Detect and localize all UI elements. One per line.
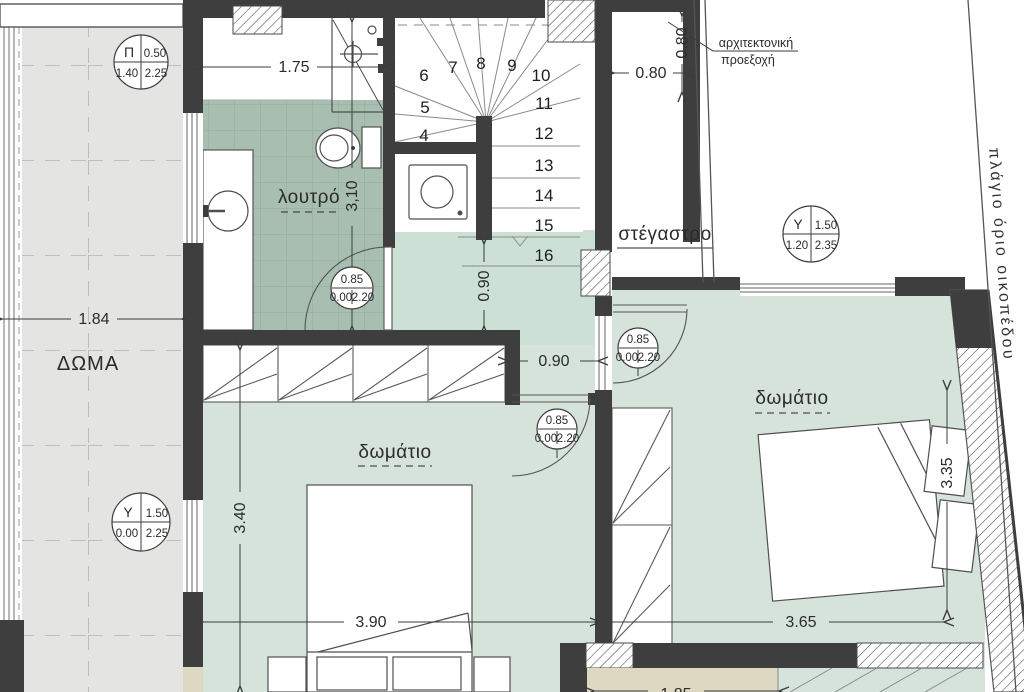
dim-bath-width: 1.75 xyxy=(278,59,309,76)
tag-value: 2.25 xyxy=(145,68,167,80)
pillow xyxy=(393,657,461,690)
stair-number: 8 xyxy=(476,54,485,73)
tag-window-y-terrace: Y 1.50 0.00 2.25 xyxy=(112,493,170,551)
tag-window-y-canopy: Y 1.50 1.20 2.35 xyxy=(783,206,839,262)
toilet xyxy=(316,127,381,168)
window-bedroom-right-north xyxy=(740,281,895,296)
window-bathroom-west xyxy=(183,113,203,243)
tag-letter: Y xyxy=(123,504,133,520)
tag-value: 2.20 xyxy=(557,433,579,445)
floor-plan-sheet: 4 5 6 7 8 9 10 11 12 13 14 15 16 xyxy=(0,0,1024,692)
dim-hall-h: 0.90 xyxy=(538,353,569,370)
terrace-floor xyxy=(0,4,183,692)
stair-number: 5 xyxy=(420,98,429,117)
window-hall-east xyxy=(595,316,612,390)
wardrobe-left xyxy=(203,345,505,402)
stair-number: 15 xyxy=(535,216,554,235)
tag-value: 0.50 xyxy=(144,48,166,60)
tag-value: 1.20 xyxy=(786,240,808,252)
sink-counter xyxy=(201,150,253,330)
tag-value: 0.00 xyxy=(535,433,557,445)
annotation-projection-line1: αρχιτεκτονική xyxy=(719,36,793,50)
dim-bedroom-left-width: 3.90 xyxy=(355,614,386,631)
dim-terrace-width: 1.84 xyxy=(78,311,109,328)
label-terrace: ΔΩΜΑ xyxy=(57,353,119,375)
pillow xyxy=(932,500,980,572)
stair-number: 9 xyxy=(507,56,516,75)
dim-bedroom-right-depth: 3.35 xyxy=(939,457,956,488)
stair-number: 11 xyxy=(535,94,553,113)
nightstand xyxy=(474,657,510,692)
wardrobe-right xyxy=(612,408,672,645)
stair-number: 16 xyxy=(535,246,554,265)
tag-value: 0.85 xyxy=(627,334,649,346)
tag-value: 0.00 xyxy=(616,352,638,364)
dim-bedroom-right-width: 3.65 xyxy=(785,614,816,631)
dim-bedroom-left-depth: 3.40 xyxy=(232,502,249,533)
tag-value: 1.50 xyxy=(815,220,837,232)
stair-number: 7 xyxy=(448,58,457,77)
nightstand xyxy=(268,657,306,692)
tag-value: 1.40 xyxy=(116,68,138,80)
label-bathroom: λουτρό xyxy=(278,187,340,208)
dim-hall-v: 0.90 xyxy=(476,270,493,301)
stair-number: 12 xyxy=(535,124,554,143)
stair-number: 14 xyxy=(535,186,554,205)
pillow xyxy=(317,657,387,690)
dim-niche-width: 0.80 xyxy=(635,65,666,82)
stair-number: 10 xyxy=(532,66,551,85)
tag-value: 2.20 xyxy=(352,292,374,304)
tag-letter: Π xyxy=(124,44,134,60)
tag-value: 2.20 xyxy=(638,352,660,364)
tag-value: 0.00 xyxy=(330,292,352,304)
tag-value: 2.35 xyxy=(815,240,837,252)
tag-letter: Y xyxy=(793,216,803,232)
dim-bottom-partial: 1.85 xyxy=(660,686,691,692)
tag-value: 2.25 xyxy=(146,528,168,540)
tag-value: 0.00 xyxy=(116,528,138,540)
dim-bath-length: 3,10 xyxy=(344,180,361,211)
stair-number: 13 xyxy=(535,156,554,175)
floor-plan-drawing: 4 5 6 7 8 9 10 11 12 13 14 15 16 xyxy=(0,0,1024,692)
window-bedroom-left-west xyxy=(183,500,203,592)
stair-number: 6 xyxy=(419,66,428,85)
washing-machine xyxy=(409,165,467,219)
label-canopy: στέγαστρο xyxy=(618,224,711,245)
label-bedroom-left: δωμάτιο xyxy=(358,442,431,463)
pergola-beam xyxy=(0,4,183,27)
label-bedroom-right: δωμάτιο xyxy=(755,388,828,409)
tag-window-pi: Π 0.50 1.40 2.25 xyxy=(114,35,168,89)
tag-value: 1.50 xyxy=(146,508,168,520)
tag-value: 0.85 xyxy=(546,415,568,427)
annotation-projection-line2: προεξοχή xyxy=(721,53,775,67)
dim-niche-depth: 0.80 xyxy=(674,27,691,58)
tag-value: 0.85 xyxy=(341,274,363,286)
